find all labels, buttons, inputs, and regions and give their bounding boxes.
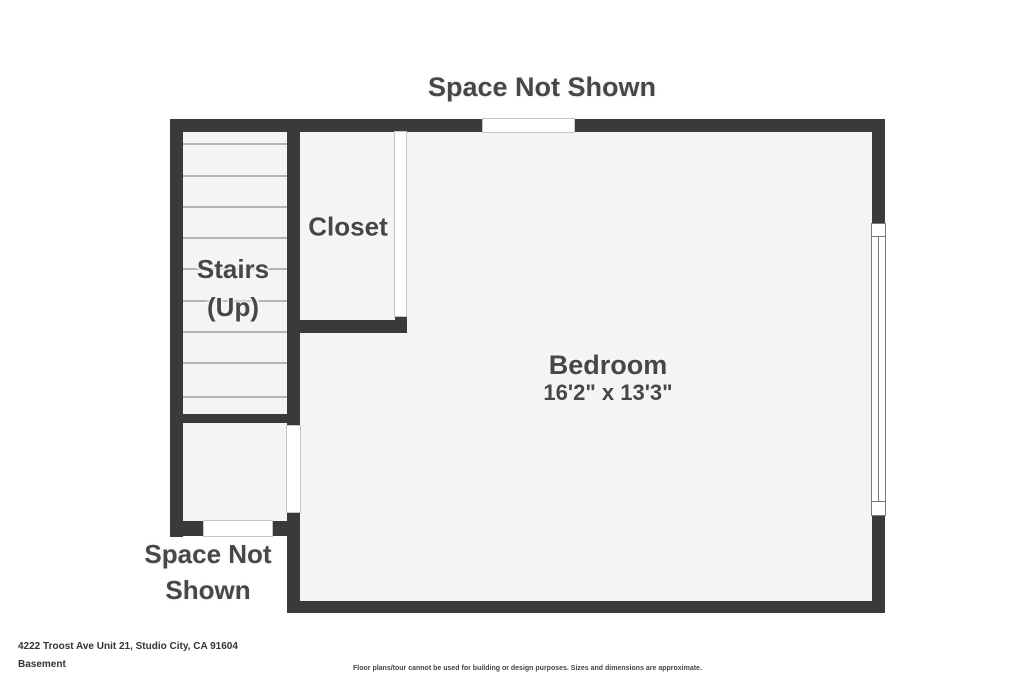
space-not-shown-bottom-label: Space Not Shown bbox=[144, 536, 271, 608]
wall-stairs-bottom bbox=[183, 414, 300, 423]
space-bottom-line2: Shown bbox=[144, 572, 271, 608]
disclaimer-text: Floor plans/tour cannot be used for buil… bbox=[353, 665, 702, 672]
stair-tread-line bbox=[183, 143, 287, 145]
floor-fill-bedroom-lower bbox=[300, 521, 872, 601]
wall-bottom-bedroom bbox=[287, 601, 885, 613]
stair-tread-line bbox=[183, 396, 287, 398]
stair-tread-line bbox=[183, 206, 287, 208]
stairs-label-line2: (Up) bbox=[197, 288, 269, 326]
address-text: 4222 Troost Ave Unit 21, Studio City, CA… bbox=[18, 641, 238, 652]
floor-level-text: Basement bbox=[18, 659, 66, 670]
stairs-label: Stairs (Up) bbox=[197, 250, 269, 326]
wall-stairs-right bbox=[287, 131, 300, 423]
bedroom-dimensions: 16'2" x 13'3" bbox=[543, 380, 672, 406]
wall-closet-door-stub bbox=[395, 317, 407, 333]
door-opening-lower-room bbox=[203, 520, 273, 537]
stairs-label-line1: Stairs bbox=[197, 250, 269, 288]
wall-closet-bottom bbox=[300, 320, 407, 333]
bedroom-label: Bedroom 16'2" x 13'3" bbox=[543, 350, 672, 406]
door-opening-bedroom-left bbox=[286, 425, 301, 513]
stair-tread-line bbox=[183, 362, 287, 364]
closet-label: Closet bbox=[308, 212, 387, 243]
stair-tread-line bbox=[183, 331, 287, 333]
door-opening-closet bbox=[394, 131, 407, 317]
wall-left-outer bbox=[170, 119, 183, 537]
window-center-line bbox=[878, 236, 879, 502]
door-opening-top bbox=[482, 118, 575, 133]
space-bottom-line1: Space Not bbox=[144, 536, 271, 572]
stair-tread-line bbox=[183, 175, 287, 177]
window-right-wall bbox=[871, 223, 886, 516]
stair-tread-line bbox=[183, 237, 287, 239]
space-not-shown-top-label: Space Not Shown bbox=[428, 72, 656, 103]
floor-plan: Space Not Shown Closet Stairs (Up) Bedro… bbox=[0, 0, 1024, 683]
bedroom-name: Bedroom bbox=[543, 350, 672, 380]
